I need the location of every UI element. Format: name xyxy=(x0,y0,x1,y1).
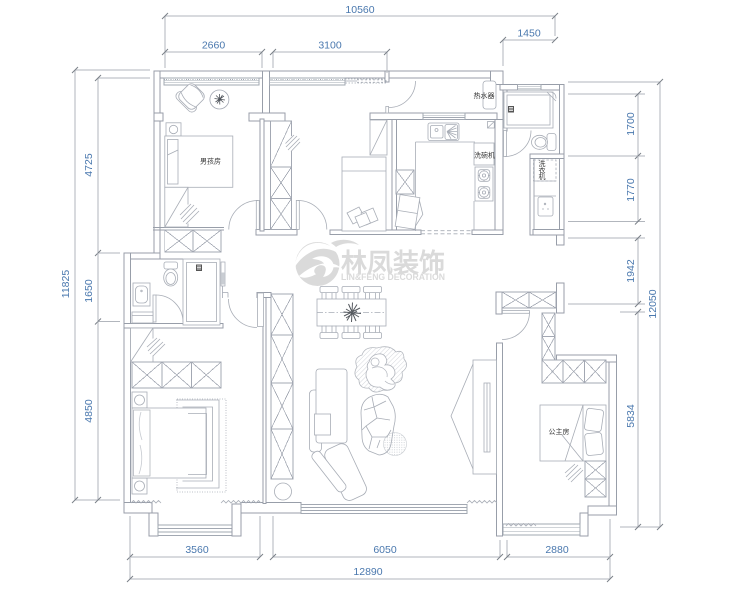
svg-text:1450: 1450 xyxy=(517,28,541,40)
svg-text:10560: 10560 xyxy=(345,4,374,16)
svg-text:LIN&FENG DECORATION: LIN&FENG DECORATION xyxy=(341,272,445,283)
svg-text:2660: 2660 xyxy=(202,40,226,52)
svg-text:机: 机 xyxy=(539,172,546,181)
svg-text:12050: 12050 xyxy=(647,289,659,318)
svg-text:4725: 4725 xyxy=(83,153,95,177)
svg-text:1942: 1942 xyxy=(625,259,637,283)
svg-text:1770: 1770 xyxy=(625,178,637,202)
svg-text:洗碗机: 洗碗机 xyxy=(474,151,495,160)
svg-text:3100: 3100 xyxy=(318,40,342,52)
svg-text:4850: 4850 xyxy=(83,399,95,423)
svg-text:3560: 3560 xyxy=(185,544,209,556)
svg-text:5834: 5834 xyxy=(625,404,637,428)
svg-text:公主房: 公主房 xyxy=(549,427,570,436)
svg-text:11825: 11825 xyxy=(60,270,72,299)
svg-text:2880: 2880 xyxy=(545,544,569,556)
svg-text:男孩房: 男孩房 xyxy=(200,157,221,166)
svg-text:1700: 1700 xyxy=(625,112,637,136)
svg-text:热水器: 热水器 xyxy=(474,91,495,100)
svg-text:1650: 1650 xyxy=(83,279,95,303)
svg-text:12890: 12890 xyxy=(353,566,382,578)
svg-text:6050: 6050 xyxy=(373,544,397,556)
